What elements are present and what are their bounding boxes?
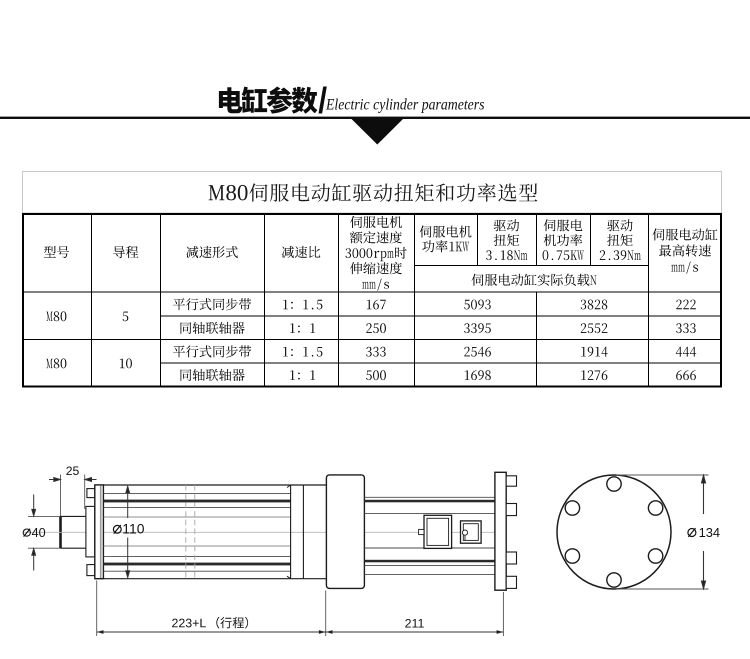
svg-text:40: 40 xyxy=(32,526,46,540)
svg-text:110: 110 xyxy=(122,521,144,537)
svg-text:Electric cylinder parameters: Electric cylinder parameters xyxy=(325,97,484,114)
svg-text:134: 134 xyxy=(699,525,721,540)
svg-text:25: 25 xyxy=(66,464,80,478)
svg-text:211: 211 xyxy=(405,617,425,631)
